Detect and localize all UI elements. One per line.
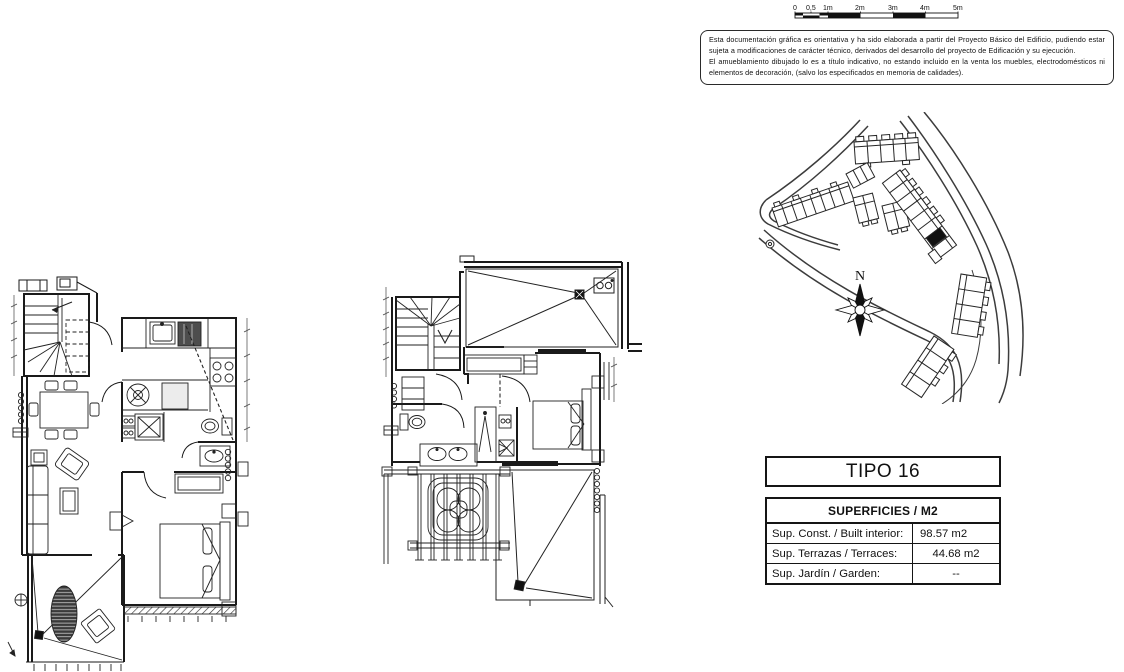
sun-lounger bbox=[51, 586, 77, 642]
dimension-lines bbox=[383, 287, 617, 402]
side-table bbox=[31, 450, 47, 465]
row-value-terraces: 44.68 m2 bbox=[913, 544, 999, 563]
stove bbox=[210, 358, 236, 386]
railing-ticks bbox=[34, 664, 121, 671]
type-title: TIPO 16 bbox=[846, 461, 920, 483]
bedroom bbox=[533, 362, 609, 513]
lower-terrace bbox=[496, 470, 613, 607]
bedroom-door-arc bbox=[502, 376, 530, 402]
jacuzzi bbox=[428, 478, 488, 540]
scale-tick-0: 0 bbox=[793, 5, 797, 12]
type-title-box: TIPO 16 bbox=[765, 456, 1001, 487]
terrace-drain bbox=[34, 630, 43, 639]
kitchen-door-arc bbox=[102, 382, 122, 402]
double-bed bbox=[533, 401, 583, 449]
stair-direction-arrow bbox=[438, 330, 452, 343]
entry-door-arc bbox=[89, 322, 112, 345]
table-row: Sup. Jardín / Garden: -- bbox=[767, 563, 999, 583]
compass-rose: N bbox=[836, 269, 884, 336]
row-value-built: 98.57 m2 bbox=[913, 524, 999, 543]
site-plan: N bbox=[758, 112, 1083, 404]
disclaimer-paragraph-2: El amueblamiento dibujado lo es a título… bbox=[709, 57, 1105, 79]
hall-door-arc bbox=[436, 374, 462, 400]
kitchen bbox=[122, 318, 236, 442]
surfaces-table-header: SUPERFICIES / M2 bbox=[767, 499, 999, 524]
toilet-bowl bbox=[409, 416, 425, 429]
staircase bbox=[24, 294, 89, 376]
bedroom-door-arc bbox=[144, 472, 166, 498]
washbasin-counter bbox=[200, 446, 230, 466]
terrace-drain bbox=[514, 580, 525, 591]
scale-tick-1m: 1m bbox=[823, 5, 833, 12]
table-row: Sup. Const. / Built interior: 98.57 m2 bbox=[767, 524, 999, 543]
row-label-built: Sup. Const. / Built interior: bbox=[767, 524, 913, 543]
scale-tick-05: 0,5 bbox=[806, 5, 816, 12]
dining-area bbox=[13, 381, 99, 439]
disclaimer-paragraph-1: Esta documentación gráfica es orientativ… bbox=[709, 35, 1105, 57]
pillow bbox=[571, 404, 580, 423]
north-label: N bbox=[855, 269, 865, 284]
scale-tick-3m: 3m bbox=[888, 5, 898, 12]
plan-sheet: 0 0,5 1m 2m 3m 4m 5m Esta documentación … bbox=[0, 0, 1124, 672]
bathroom-door-arc bbox=[442, 404, 464, 428]
toilet-bowl bbox=[202, 419, 219, 433]
railing-ticks bbox=[128, 616, 226, 622]
bedroom bbox=[124, 474, 236, 622]
railing-circles bbox=[594, 468, 599, 512]
dining-table bbox=[40, 392, 88, 428]
pergola bbox=[382, 467, 510, 564]
bedroom-window-band bbox=[538, 349, 586, 354]
scale-bar: 0 0,5 1m 2m 3m 4m 5m bbox=[792, 3, 964, 23]
terrace-chair bbox=[81, 608, 116, 643]
staircase bbox=[396, 297, 460, 370]
bedroom-window-band bbox=[124, 607, 236, 614]
row-label-terraces: Sup. Terrazas / Terraces: bbox=[767, 544, 913, 563]
landing-wardrobe bbox=[402, 355, 537, 410]
headboard bbox=[220, 522, 230, 600]
row-label-garden: Sup. Jardín / Garden: bbox=[767, 564, 913, 583]
upper-terrace bbox=[460, 256, 618, 347]
overhead-dashed-line bbox=[186, 326, 233, 440]
scale-tick-2m: 2m bbox=[855, 5, 865, 12]
cabinet bbox=[402, 377, 424, 410]
surfaces-table: SUPERFICIES / M2 Sup. Const. / Built int… bbox=[765, 497, 1001, 585]
building-block-top bbox=[854, 133, 920, 168]
first-floor-plan bbox=[372, 252, 642, 647]
terrace bbox=[8, 557, 122, 671]
disclaimer-box: Esta documentación gráfica es orientativ… bbox=[700, 30, 1114, 85]
nightstand bbox=[592, 450, 604, 462]
nightstand bbox=[222, 504, 236, 518]
bathroom bbox=[384, 383, 514, 466]
scale-tick-4m: 4m bbox=[920, 5, 930, 12]
armchair bbox=[54, 447, 90, 481]
facade-window-band bbox=[502, 461, 558, 466]
building-block-right-vertical bbox=[952, 274, 992, 338]
toilet-door-arc bbox=[182, 442, 198, 458]
barbecue bbox=[594, 278, 614, 293]
sofa bbox=[27, 466, 48, 554]
living-room bbox=[27, 447, 133, 554]
shower bbox=[475, 407, 496, 462]
table-row: Sup. Terrazas / Terraces: 44.68 m2 bbox=[767, 543, 999, 563]
row-value-garden: -- bbox=[913, 564, 999, 583]
nightstand bbox=[592, 376, 604, 388]
building-cluster-middle-1 bbox=[853, 193, 880, 227]
double-bed bbox=[160, 524, 220, 598]
ground-floor-plan bbox=[2, 262, 254, 672]
toilet-tank bbox=[400, 414, 408, 430]
scale-tick-5m: 5m bbox=[953, 5, 963, 12]
entry-steps bbox=[19, 277, 97, 293]
